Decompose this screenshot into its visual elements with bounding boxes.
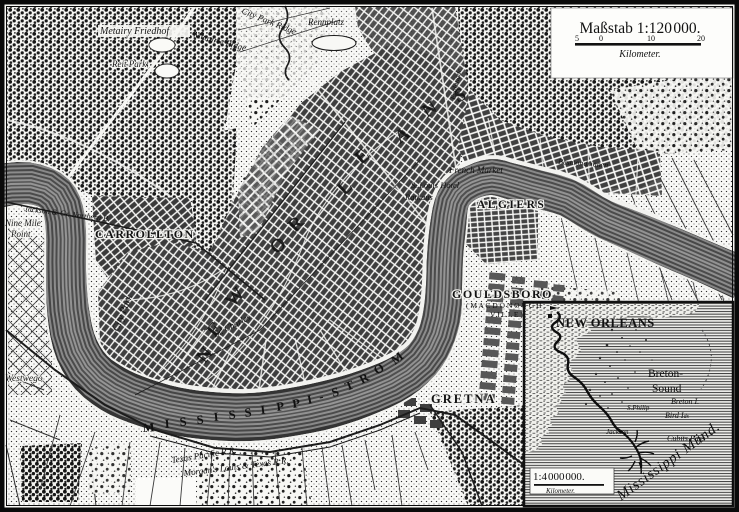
svg-text:St.Louis Hotel: St.Louis Hotel [411, 180, 460, 190]
svg-text:Nine Mile: Nine Mile [4, 218, 41, 228]
svg-text:ALGIERS: ALGIERS [477, 199, 546, 211]
svg-text:NEW ORLEANS: NEW ORLEANS [556, 316, 655, 330]
svg-text:10: 10 [647, 34, 655, 43]
svg-text:Kilometer.: Kilometer. [545, 487, 575, 495]
svg-text:Maßstab 1:120 000.: Maßstab 1:120 000. [580, 20, 701, 37]
svg-text:Jackson: Jackson [606, 428, 629, 436]
svg-text:Sound: Sound [652, 383, 682, 395]
svg-text:GOULDSBORO: GOULDSBORO [452, 287, 553, 301]
svg-text:20: 20 [697, 34, 705, 43]
svg-text:S.Philip: S.Philip [627, 404, 650, 412]
svg-text:1:4 000 000.: 1:4 000 000. [533, 471, 585, 483]
svg-text:Breton I.: Breton I. [671, 397, 699, 406]
svg-text:French Market: French Market [448, 165, 503, 175]
svg-text:M: M [142, 420, 155, 435]
svg-text:Point: Point [10, 229, 31, 239]
svg-text:Westwego: Westwego [5, 374, 43, 384]
svg-text:Kilometer.: Kilometer. [618, 49, 660, 60]
svg-text:V I L L E ): V I L L E ) [490, 310, 523, 319]
svg-text:GRETNA: GRETNA [431, 392, 496, 406]
svg-text:Metairy Friedhof: Metairy Friedhof [99, 26, 170, 37]
svg-text:Reit Park: Reit Park [111, 59, 147, 69]
svg-text:S: S [228, 407, 236, 422]
svg-text:S: S [179, 414, 187, 429]
svg-text:5: 5 [575, 34, 579, 43]
svg-text:CARROLLTON: CARROLLTON [95, 227, 195, 241]
svg-text:Rennplatz: Rennplatz [307, 17, 344, 27]
svg-text:( M A C D O N O U G H: ( M A C D O N O U G H [466, 301, 542, 310]
svg-text:S: S [196, 412, 204, 427]
svg-text:Rathaus: Rathaus [404, 192, 434, 202]
svg-text:0: 0 [599, 34, 603, 43]
svg-text:Breton-: Breton- [648, 368, 683, 380]
